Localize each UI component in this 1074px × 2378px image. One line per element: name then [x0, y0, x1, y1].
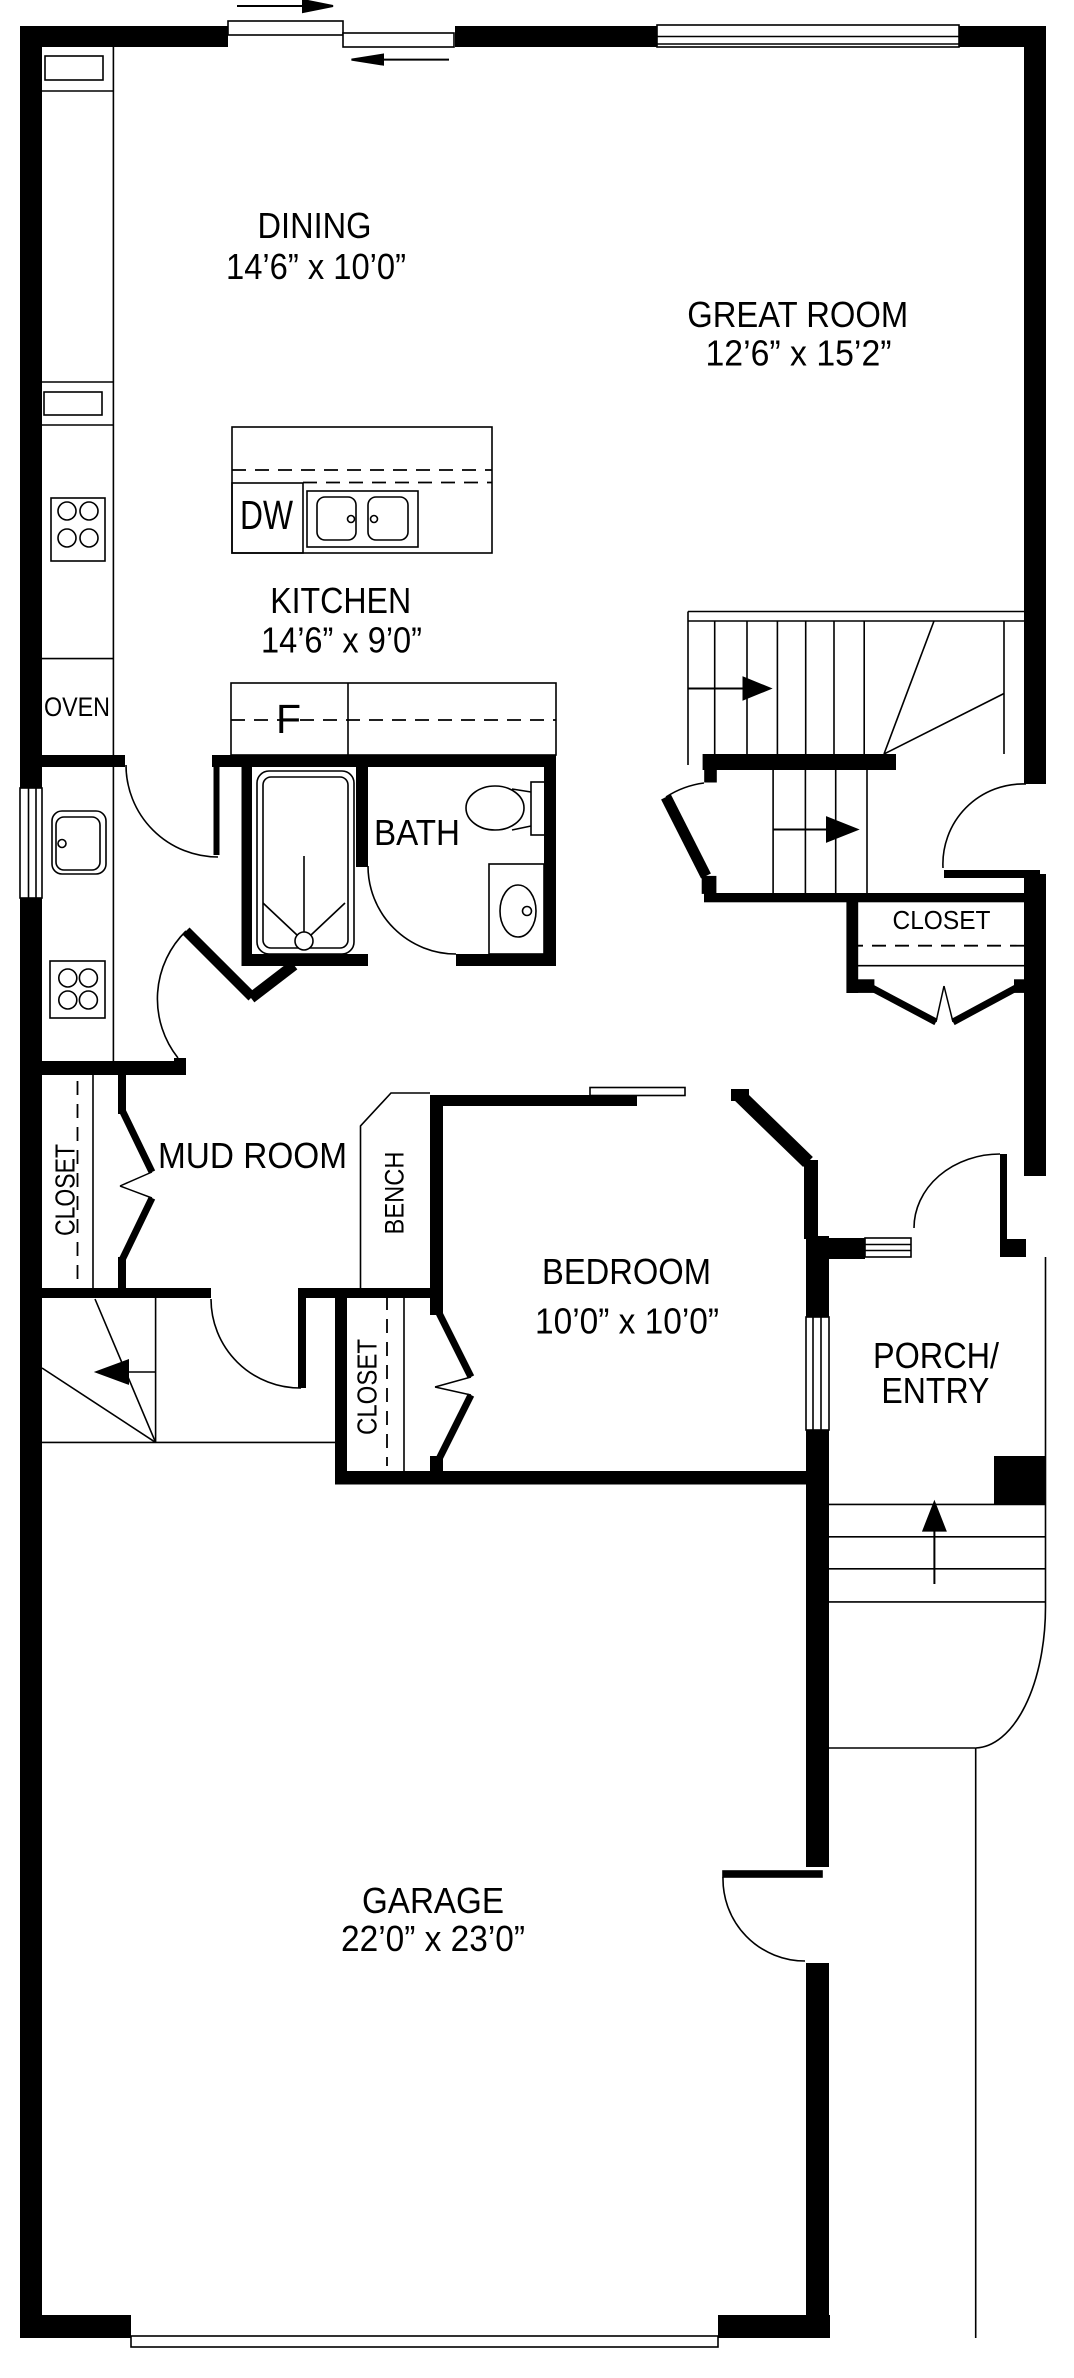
svg-text:F: F [276, 696, 301, 742]
svg-text:CLOSET: CLOSET [352, 1339, 383, 1435]
svg-text:14’6” x 10’0”: 14’6” x 10’0” [226, 246, 406, 287]
svg-text:CLOSET: CLOSET [50, 1144, 81, 1236]
svg-text:22’0” x 23’0”: 22’0” x 23’0” [341, 1918, 525, 1959]
svg-text:14’6” x 9’0”: 14’6” x 9’0” [261, 620, 422, 661]
svg-text:BEDROOM: BEDROOM [542, 1251, 711, 1292]
svg-text:GREAT ROOM: GREAT ROOM [687, 294, 908, 335]
svg-text:KITCHEN: KITCHEN [270, 580, 411, 621]
svg-text:GARAGE: GARAGE [362, 1880, 504, 1921]
svg-text:MUD ROOM: MUD ROOM [158, 1135, 347, 1176]
svg-text:OVEN: OVEN [44, 692, 110, 722]
svg-text:12’6” x 15’2”: 12’6” x 15’2” [706, 333, 892, 374]
svg-text:BENCH: BENCH [380, 1152, 410, 1235]
svg-text:10’0” x 10’0”: 10’0” x 10’0” [535, 1301, 719, 1342]
svg-text:DINING: DINING [258, 205, 372, 246]
svg-text:DW: DW [240, 492, 293, 538]
svg-text:CLOSET: CLOSET [893, 905, 991, 935]
svg-text:ENTRY: ENTRY [881, 1370, 989, 1411]
svg-text:BATH: BATH [374, 812, 460, 853]
